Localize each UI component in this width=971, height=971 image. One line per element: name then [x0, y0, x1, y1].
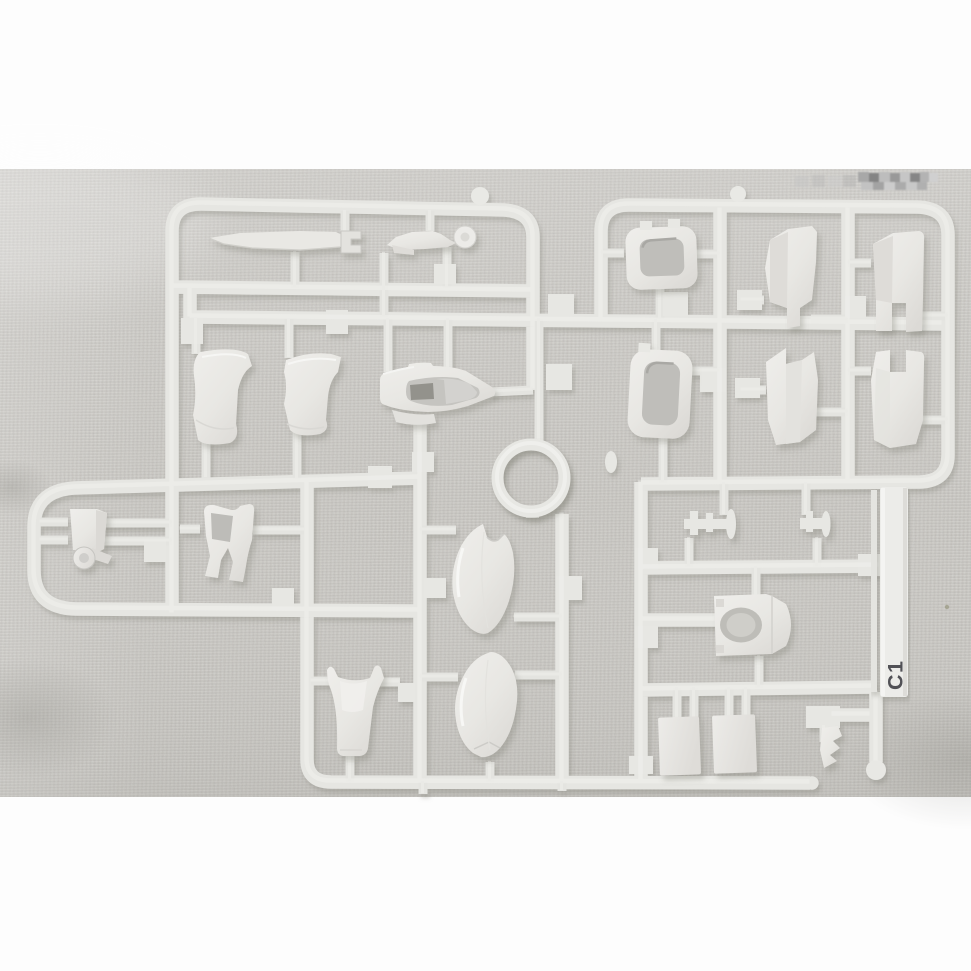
svg-text:C1: C1 [884, 660, 908, 690]
